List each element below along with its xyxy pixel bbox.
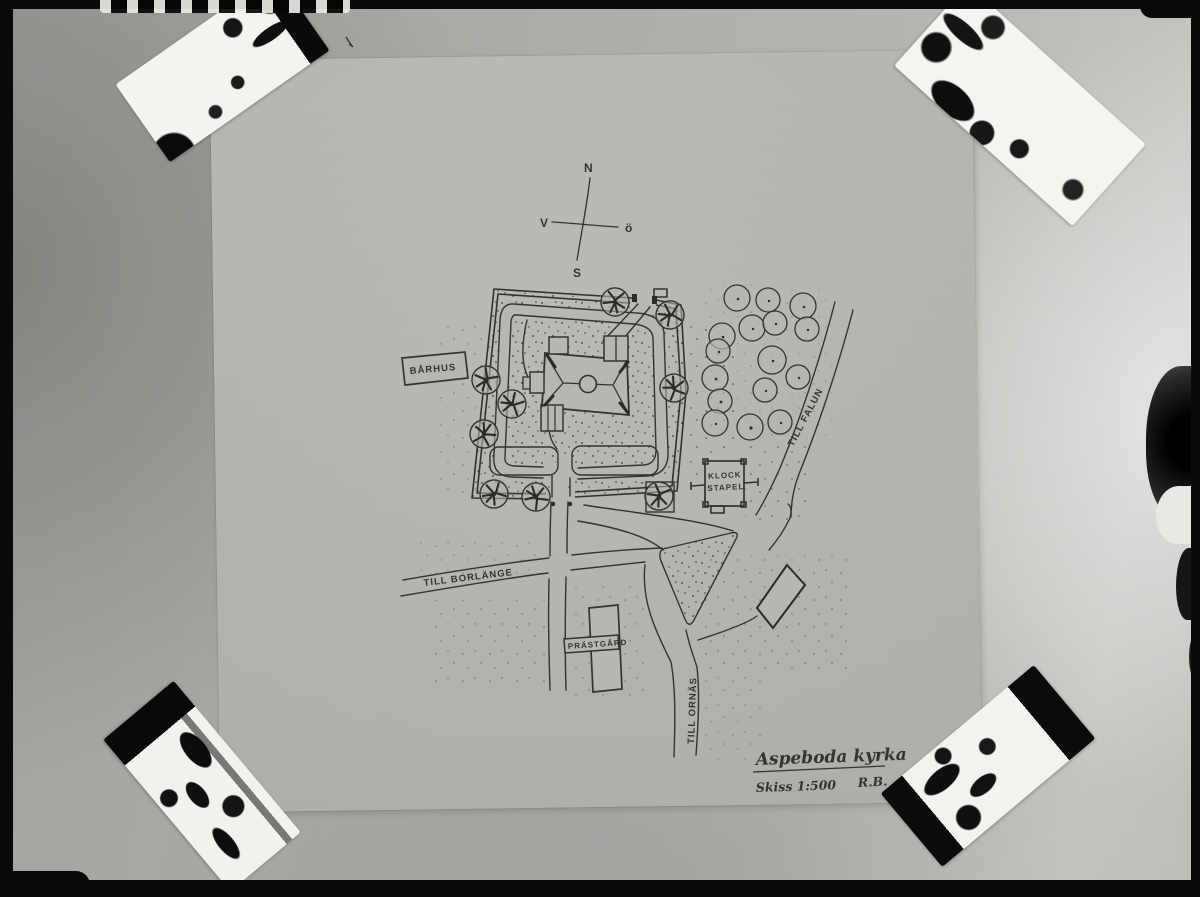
- film-edge-markings: [100, 0, 350, 13]
- caption-scale: Skiss 1:500: [756, 777, 837, 795]
- film-frame-corner-top-right: [1140, 0, 1200, 18]
- compass-south-label: S: [573, 266, 582, 280]
- church-tower-dome: [580, 376, 597, 393]
- compass-rose: N V ö S: [540, 161, 633, 280]
- compass-west-label: V: [540, 216, 549, 230]
- prastgard: PRÄSTGÅRD: [564, 605, 628, 692]
- caption: Aspeboda kyrka Skiss 1:500 R.B.: [753, 745, 907, 795]
- stray-pen-mark: [346, 37, 353, 47]
- compass-north-label: N: [584, 161, 594, 175]
- caption-initials: R.B.: [856, 773, 887, 790]
- road-from-gate: [549, 502, 568, 690]
- photograph-of-site-plan: BÅRHUS KLOCK STAPEL: [0, 0, 1200, 897]
- compass-east-label: ö: [625, 221, 633, 235]
- road-label-ornas: TILL ORNÄS: [686, 677, 699, 744]
- film-frame-left: [0, 0, 13, 897]
- film-frame-right: [1191, 0, 1200, 897]
- film-frame-corner-bottom-left: [0, 871, 90, 897]
- klockstapel-label-line1: KLOCK: [708, 470, 742, 481]
- film-frame-bottom: [0, 880, 1200, 897]
